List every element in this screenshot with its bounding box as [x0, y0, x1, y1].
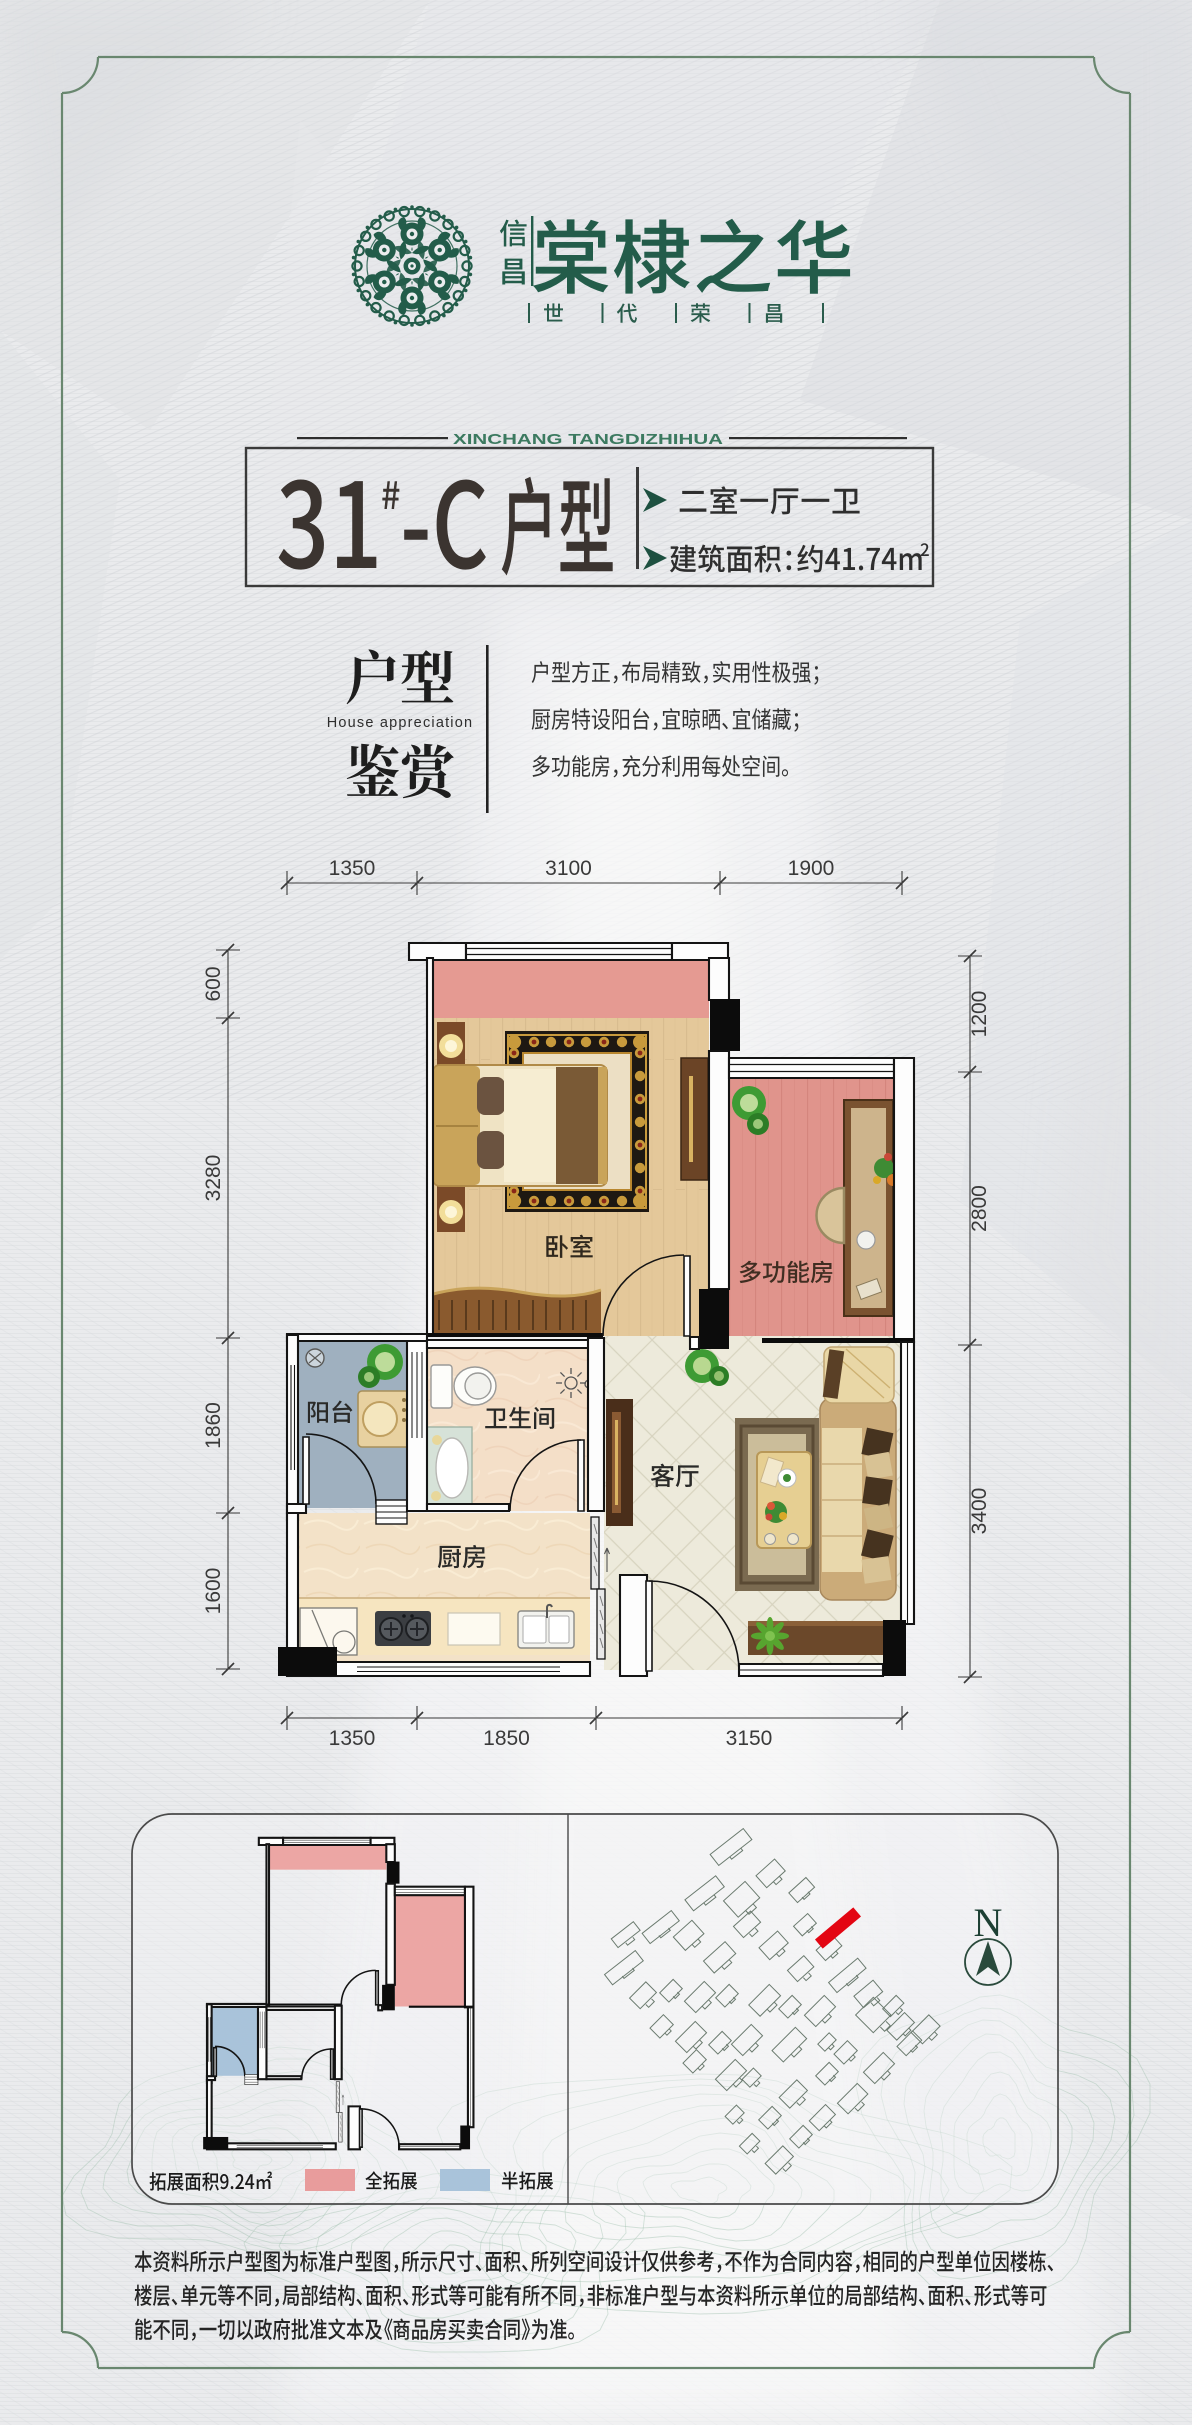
svg-text:1600: 1600 [202, 1568, 225, 1615]
svg-text:1350: 1350 [329, 857, 376, 880]
svg-text:1850: 1850 [483, 1727, 530, 1750]
svg-text:600: 600 [202, 966, 225, 1001]
svg-text:3400: 3400 [968, 1488, 991, 1535]
svg-text:3100: 3100 [545, 857, 592, 880]
svg-text:2800: 2800 [968, 1185, 991, 1232]
svg-text:1200: 1200 [968, 991, 991, 1038]
svg-text:1860: 1860 [202, 1402, 225, 1449]
svg-text:House appreciation: House appreciation [327, 715, 474, 731]
svg-text:3280: 3280 [202, 1155, 225, 1202]
svg-text:3150: 3150 [726, 1727, 773, 1750]
svg-text:1900: 1900 [788, 857, 835, 880]
svg-text:XINCHANG TANGDIZHIHUA: XINCHANG TANGDIZHIHUA [453, 431, 723, 448]
svg-text:1350: 1350 [329, 1727, 376, 1750]
